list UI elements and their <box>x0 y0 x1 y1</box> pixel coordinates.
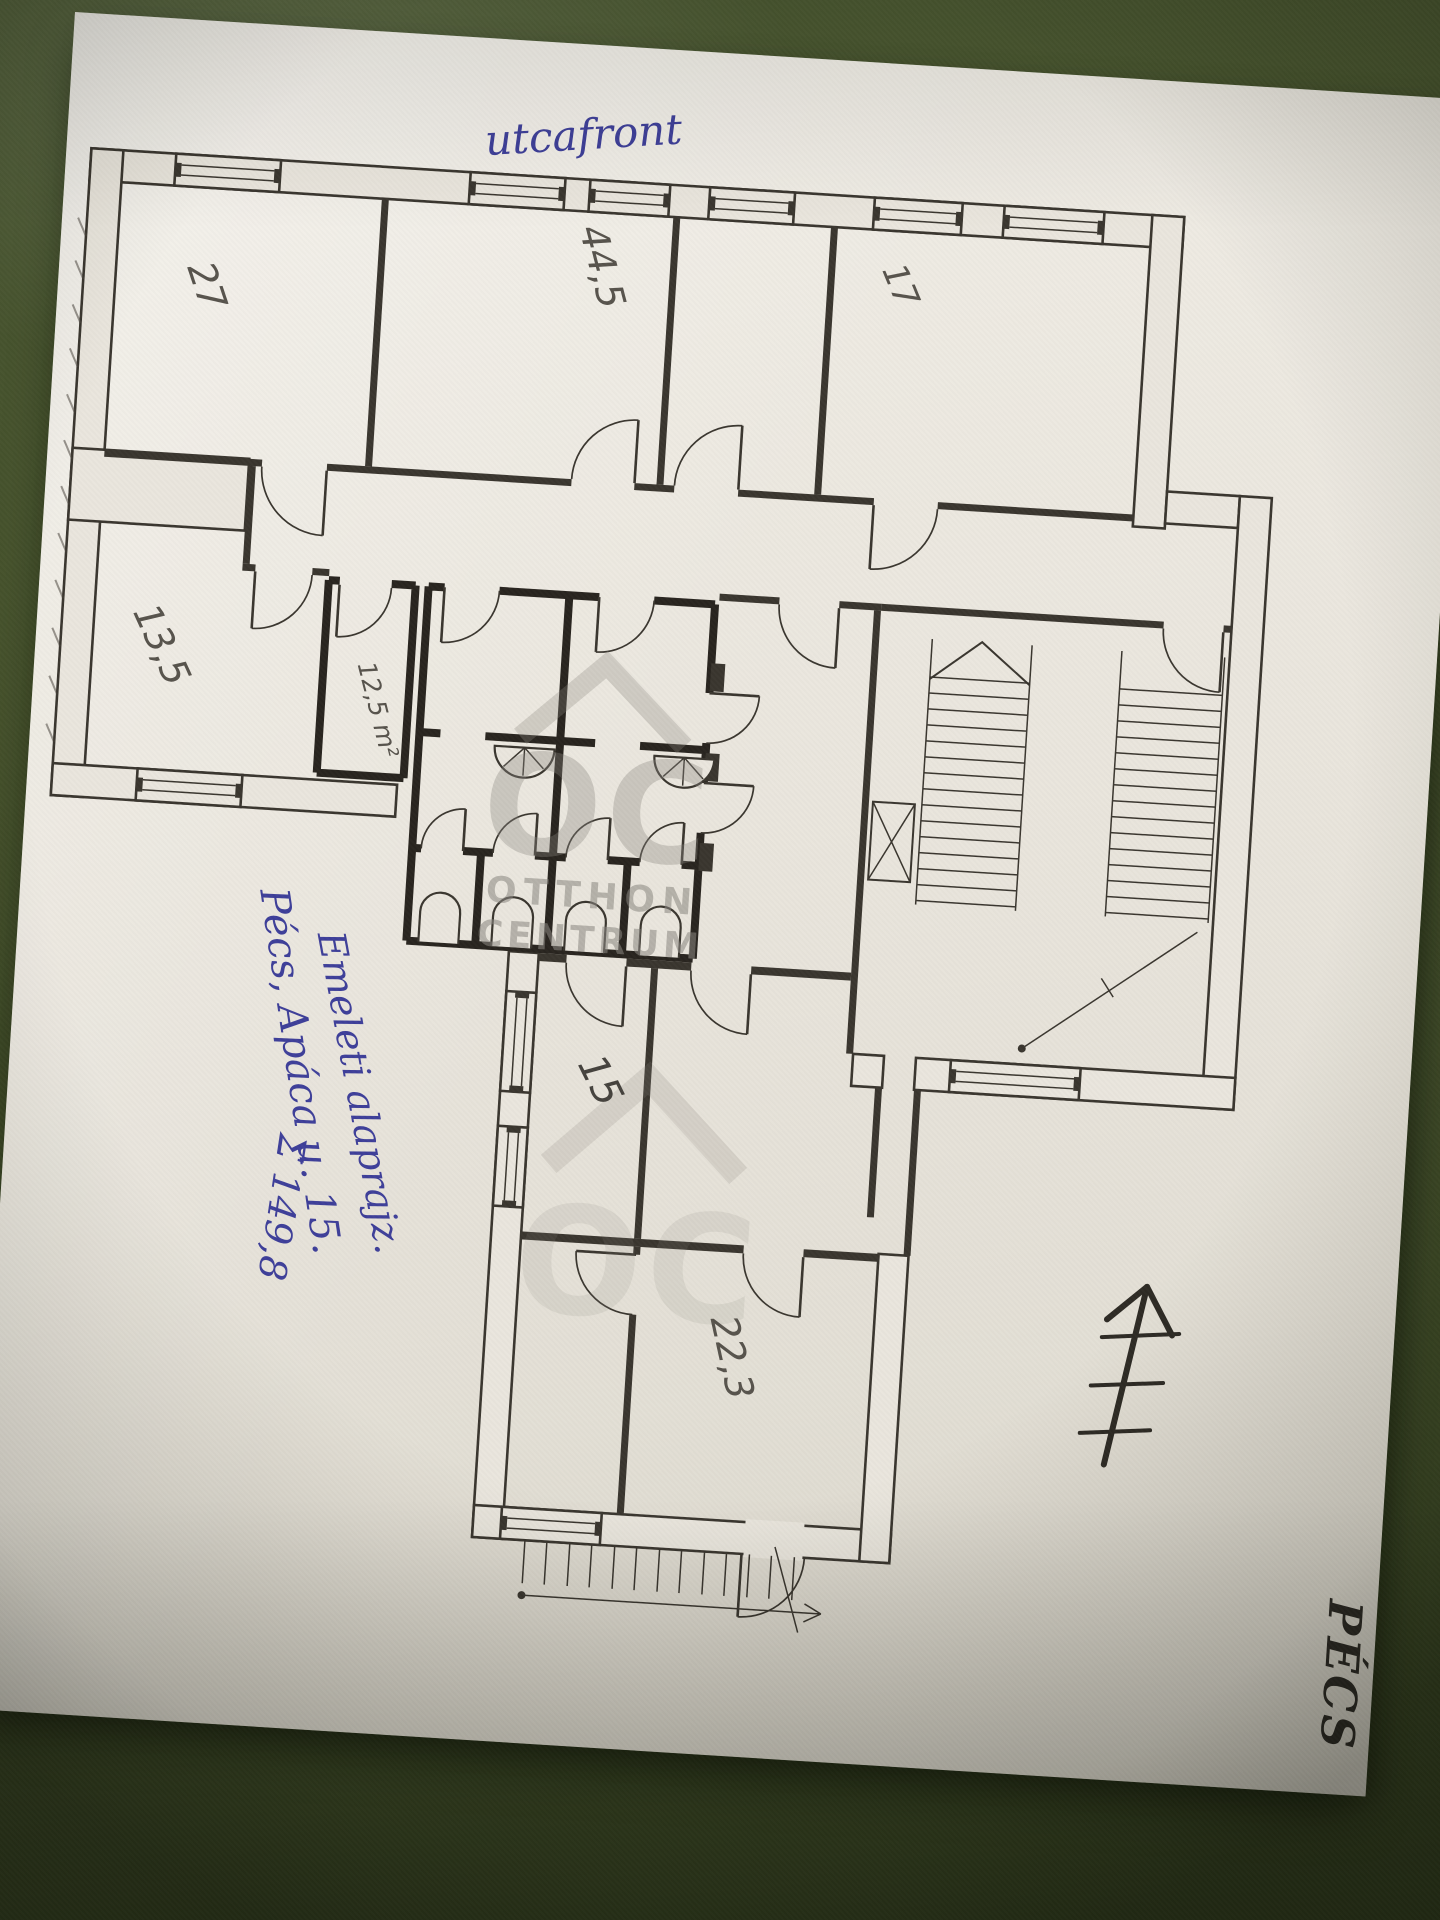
staircase <box>858 636 1225 1064</box>
entry-opening <box>743 1519 804 1561</box>
room-label-135: 13,5 <box>124 597 199 692</box>
room-label-125: 12,5 m² <box>352 659 404 761</box>
room-label-27: 27 <box>179 256 236 316</box>
corner-stamp: PÉCS <box>1309 1596 1374 1753</box>
north-arrow <box>1078 1283 1182 1468</box>
paper-sheet: OC OTTHON CENTRUM OC 27 44,5 17 13,5 12,… <box>0 12 1440 1797</box>
room-label-445: 44,5 <box>571 220 635 313</box>
street-side-note: utcafront <box>484 104 684 165</box>
room-label-17: 17 <box>874 258 928 314</box>
toilet-icon <box>418 891 461 943</box>
photo-background: OC OTTHON CENTRUM OC 27 44,5 17 13,5 12,… <box>0 0 1440 1920</box>
floor-plan-svg: OC OTTHON CENTRUM OC 27 44,5 17 13,5 12,… <box>0 12 1440 1797</box>
elevator-shaft <box>868 802 915 882</box>
note-total-area: Σ 149,8 <box>249 1129 315 1284</box>
